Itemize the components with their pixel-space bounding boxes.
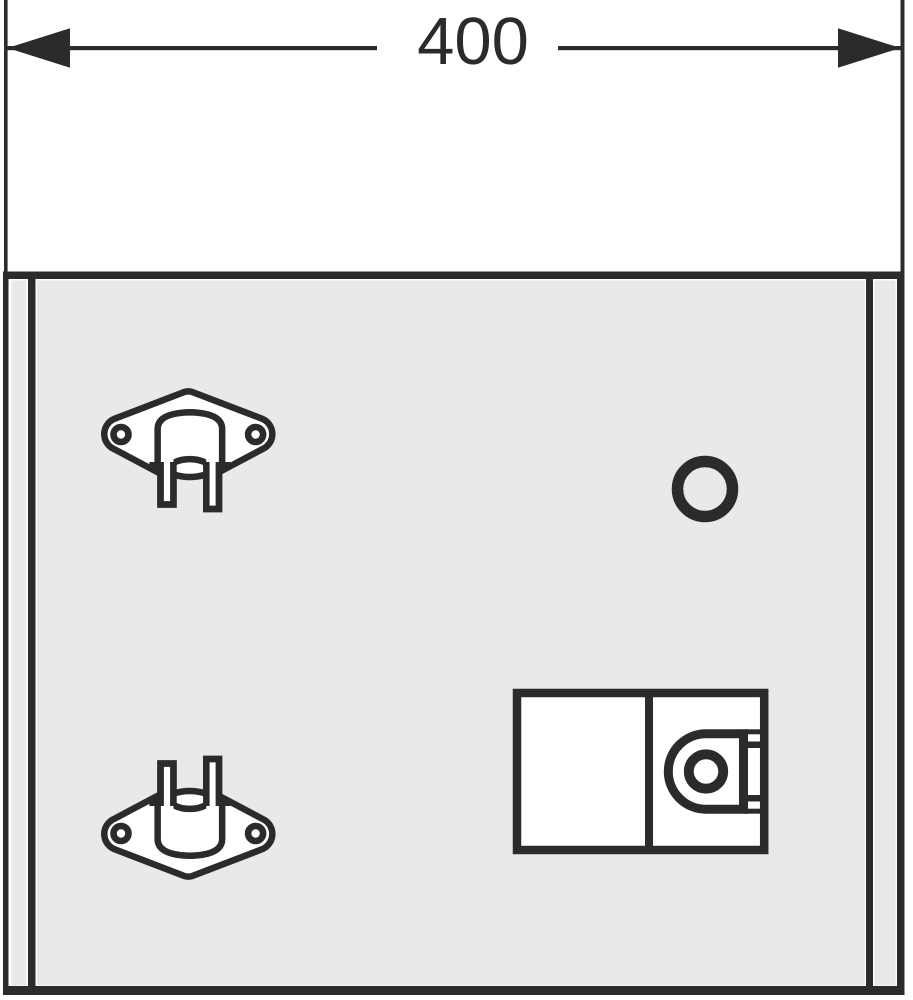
- svg-text:400: 400: [417, 4, 529, 79]
